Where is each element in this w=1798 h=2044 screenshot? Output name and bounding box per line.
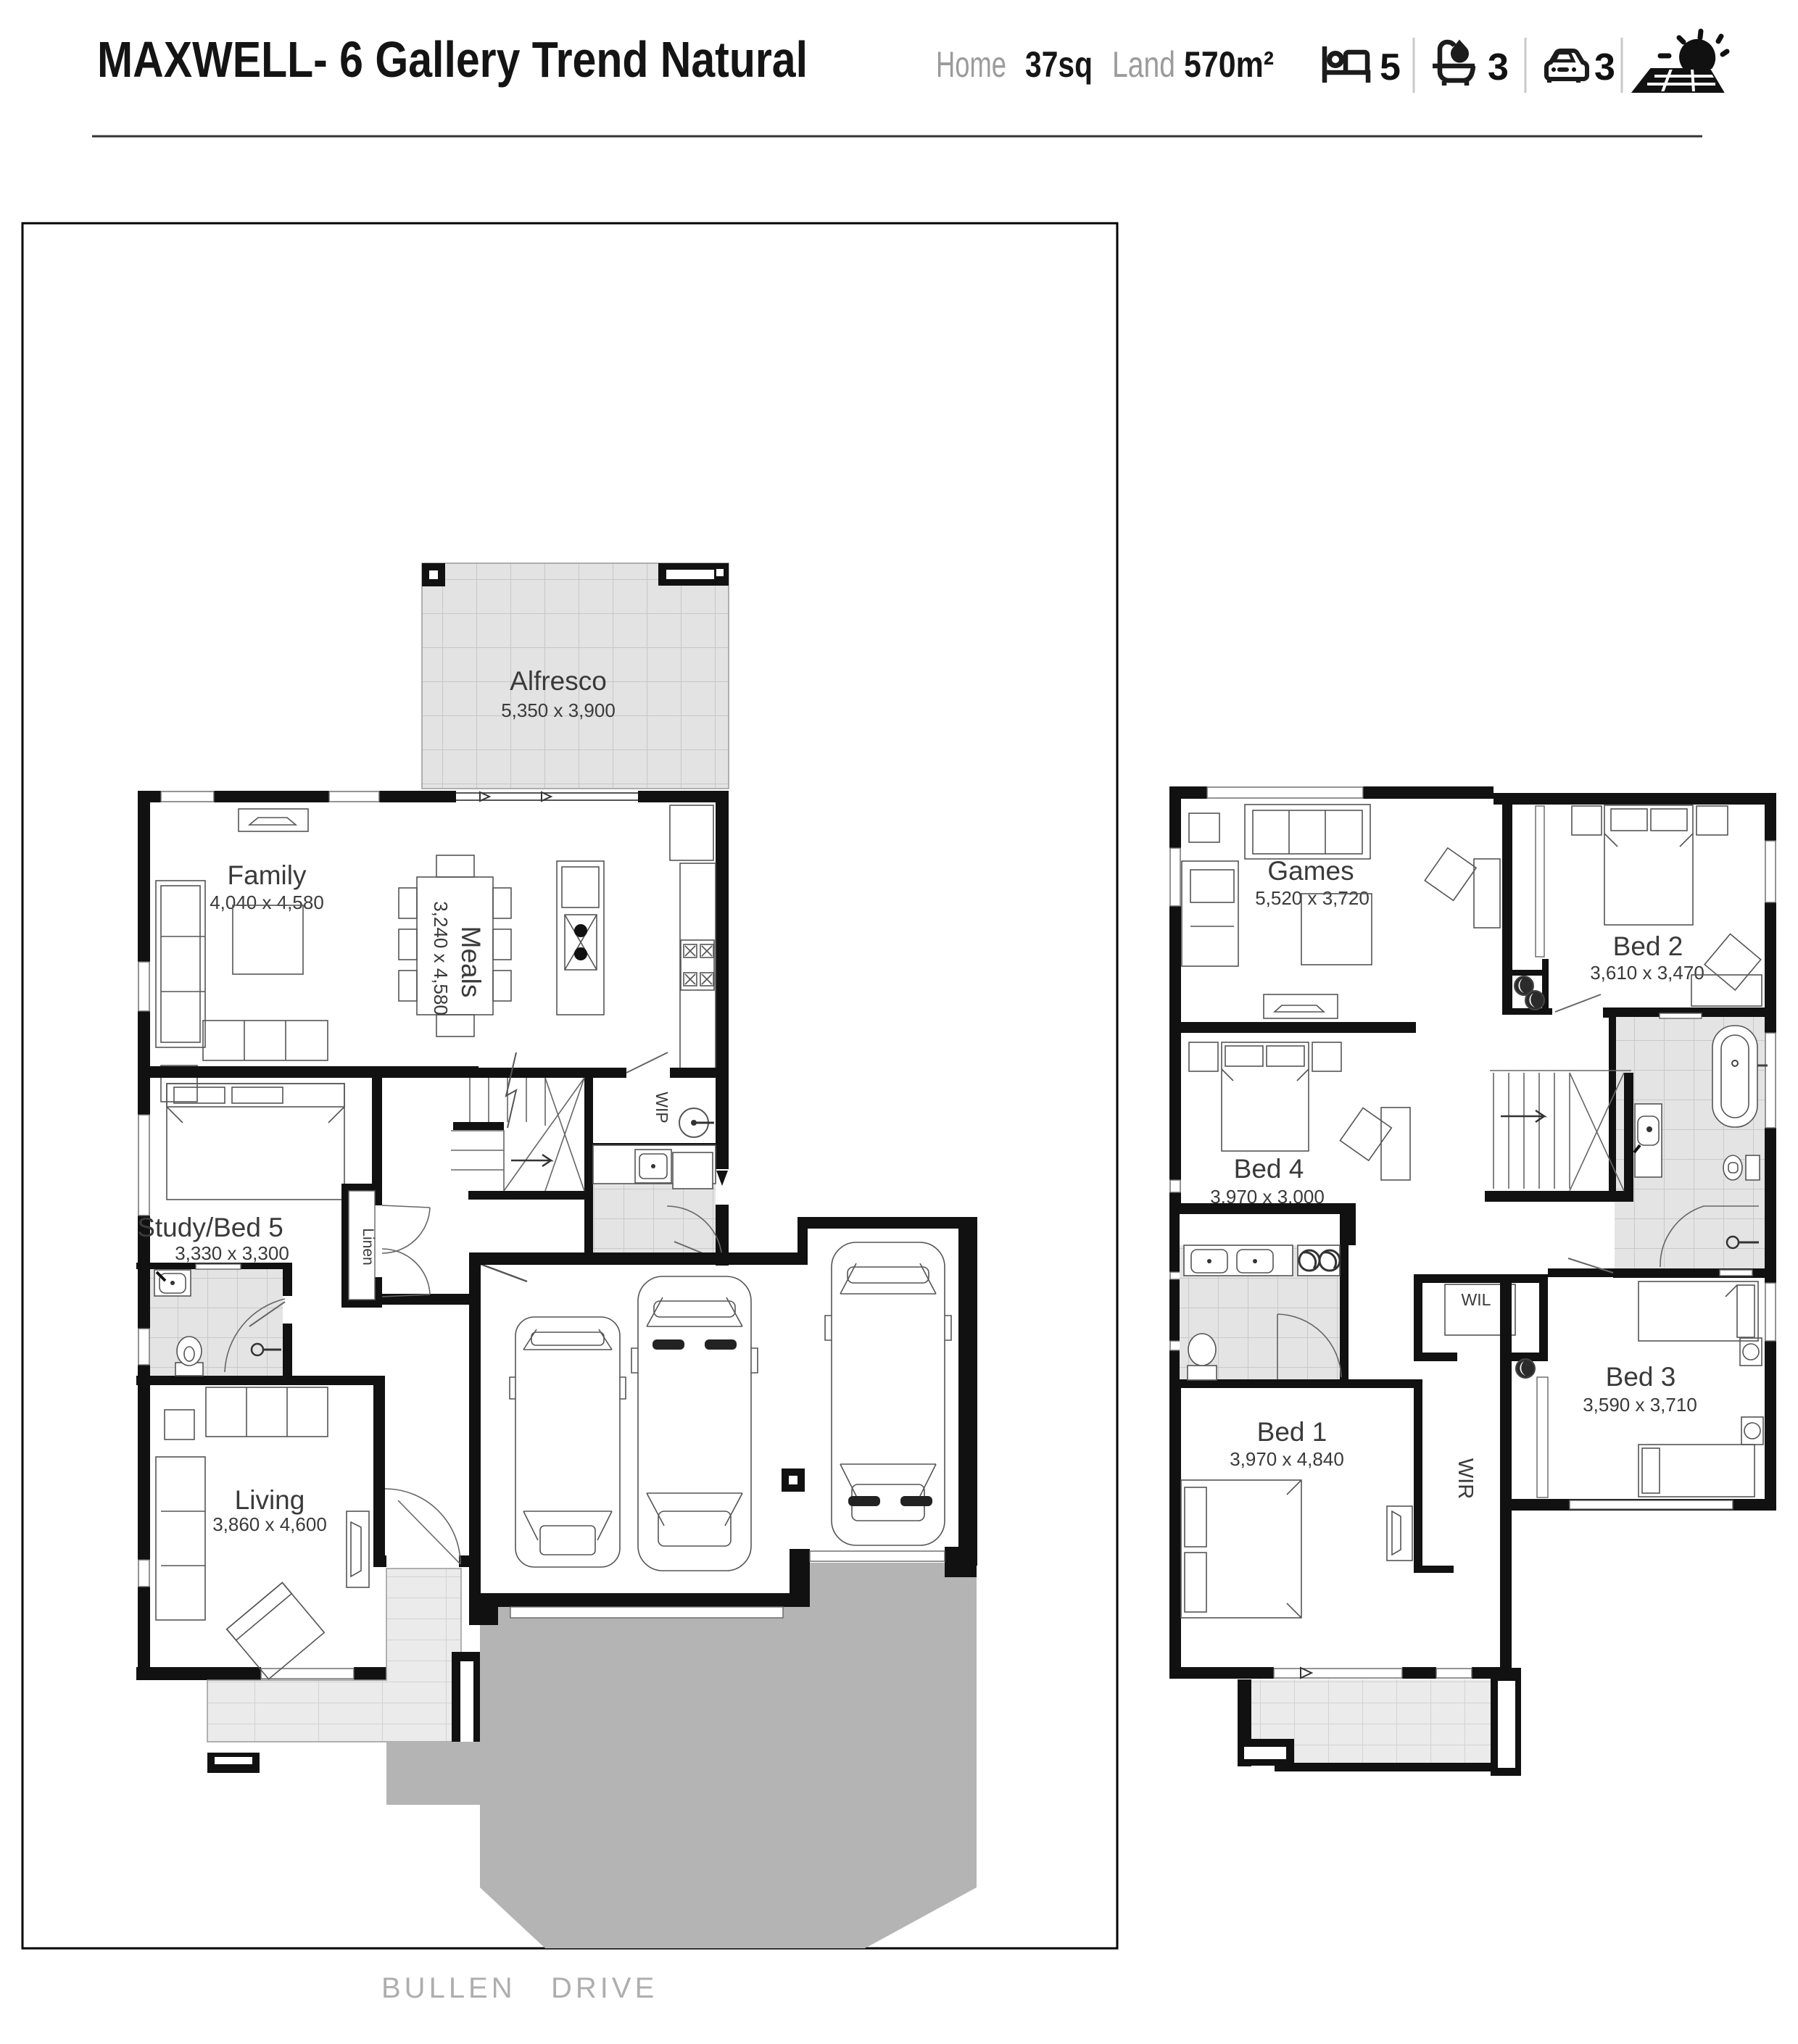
svg-text:WIL: WIL xyxy=(1462,1290,1491,1309)
svg-text:4,040 x 4,580: 4,040 x 4,580 xyxy=(210,892,324,913)
svg-text:Bed 4: Bed 4 xyxy=(1234,1154,1304,1184)
svg-text:5,350 x 3,900: 5,350 x 3,900 xyxy=(501,699,616,721)
svg-text:WIP: WIP xyxy=(652,1092,671,1123)
svg-text:3: 3 xyxy=(1594,46,1615,88)
svg-text:3,590 x 3,710: 3,590 x 3,710 xyxy=(1583,1394,1697,1416)
svg-text:3,240 x 4,580: 3,240 x 4,580 xyxy=(430,901,452,1015)
svg-text:Games: Games xyxy=(1267,856,1354,886)
svg-text:Linen: Linen xyxy=(360,1228,376,1265)
svg-text:Family: Family xyxy=(228,860,307,890)
svg-text:3: 3 xyxy=(1488,46,1509,88)
svg-text:37sq: 37sq xyxy=(1025,44,1093,85)
svg-text:Bed 1: Bed 1 xyxy=(1257,1417,1327,1447)
svg-text:Living: Living xyxy=(235,1485,305,1515)
svg-text:WIR: WIR xyxy=(1454,1458,1477,1499)
svg-text:MAXWELL- 6 Gallery Trend Natur: MAXWELL- 6 Gallery Trend Natural xyxy=(97,31,808,88)
svg-text:570m²: 570m² xyxy=(1184,44,1274,85)
svg-text:Home: Home xyxy=(936,44,1006,85)
svg-text:Land: Land xyxy=(1112,44,1175,85)
svg-text:Study/Bed 5: Study/Bed 5 xyxy=(137,1213,283,1242)
svg-text:3,970 x 4,840: 3,970 x 4,840 xyxy=(1230,1448,1344,1470)
svg-text:3,330 x 3,300: 3,330 x 3,300 xyxy=(175,1242,289,1264)
svg-text:5: 5 xyxy=(1380,46,1401,88)
svg-text:Meals: Meals xyxy=(456,926,486,998)
svg-text:Bed 2: Bed 2 xyxy=(1613,931,1683,961)
svg-text:5,520 x 3,720: 5,520 x 3,720 xyxy=(1255,887,1370,909)
svg-text:Alfresco: Alfresco xyxy=(510,666,607,696)
svg-text:DRIVE: DRIVE xyxy=(551,1972,658,2004)
svg-text:Bed 3: Bed 3 xyxy=(1606,1362,1676,1392)
svg-text:BULLEN: BULLEN xyxy=(381,1972,516,2004)
svg-text:3,610 x 3,470: 3,610 x 3,470 xyxy=(1590,962,1704,984)
svg-text:3,860 x 4,600: 3,860 x 4,600 xyxy=(212,1513,327,1535)
